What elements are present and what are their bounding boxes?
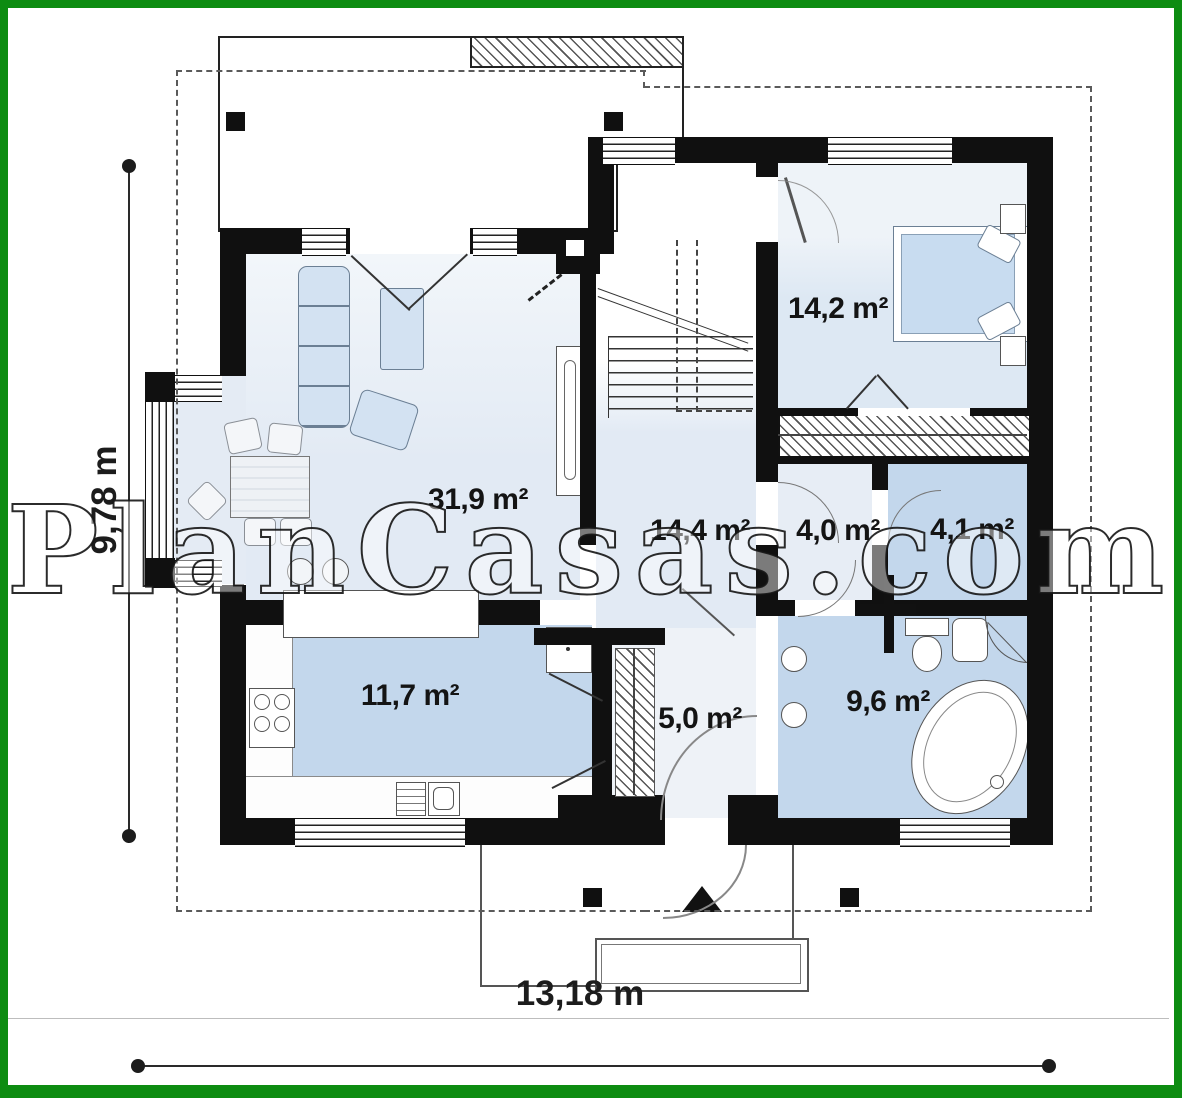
plumbing-stack xyxy=(860,604,916,616)
bathroom-label: 9,6 m² xyxy=(828,685,948,719)
bedroom-label: 14,2 m² xyxy=(758,292,918,326)
closet-label: 4,0 m² xyxy=(778,514,898,548)
floor-plan: 9,78 m 13,18 m 31,9 m² 14,2 m² 14,4 m² 4… xyxy=(0,0,1182,1098)
bay-corner-bottom xyxy=(145,558,175,588)
bay-window-side xyxy=(145,402,174,558)
living-room-label: 31,9 m² xyxy=(398,483,558,517)
roof-overhang-dashed-step xyxy=(643,70,647,88)
bay-corner-top xyxy=(145,372,175,402)
dimension-dot xyxy=(122,159,136,173)
roof-overhang-dashed-right xyxy=(644,86,1092,912)
hall-label: 14,4 m² xyxy=(620,514,780,548)
storage-label: 4,1 m² xyxy=(912,513,1032,547)
height-dimension-label: 9,78 m xyxy=(85,435,125,565)
page-rule-line xyxy=(8,1018,1169,1019)
entry-label: 5,0 m² xyxy=(640,702,760,736)
dimension-line-width xyxy=(138,1065,1049,1067)
kitchen-label: 11,7 m² xyxy=(330,679,490,713)
bar-counter xyxy=(283,590,479,638)
dimension-dot xyxy=(131,1059,145,1073)
terrace-planter xyxy=(470,36,684,68)
dimension-dot xyxy=(1042,1059,1056,1073)
dimension-line-height xyxy=(128,166,130,836)
dimension-dot xyxy=(122,829,136,843)
width-dimension-label: 13,18 m xyxy=(480,974,680,1014)
